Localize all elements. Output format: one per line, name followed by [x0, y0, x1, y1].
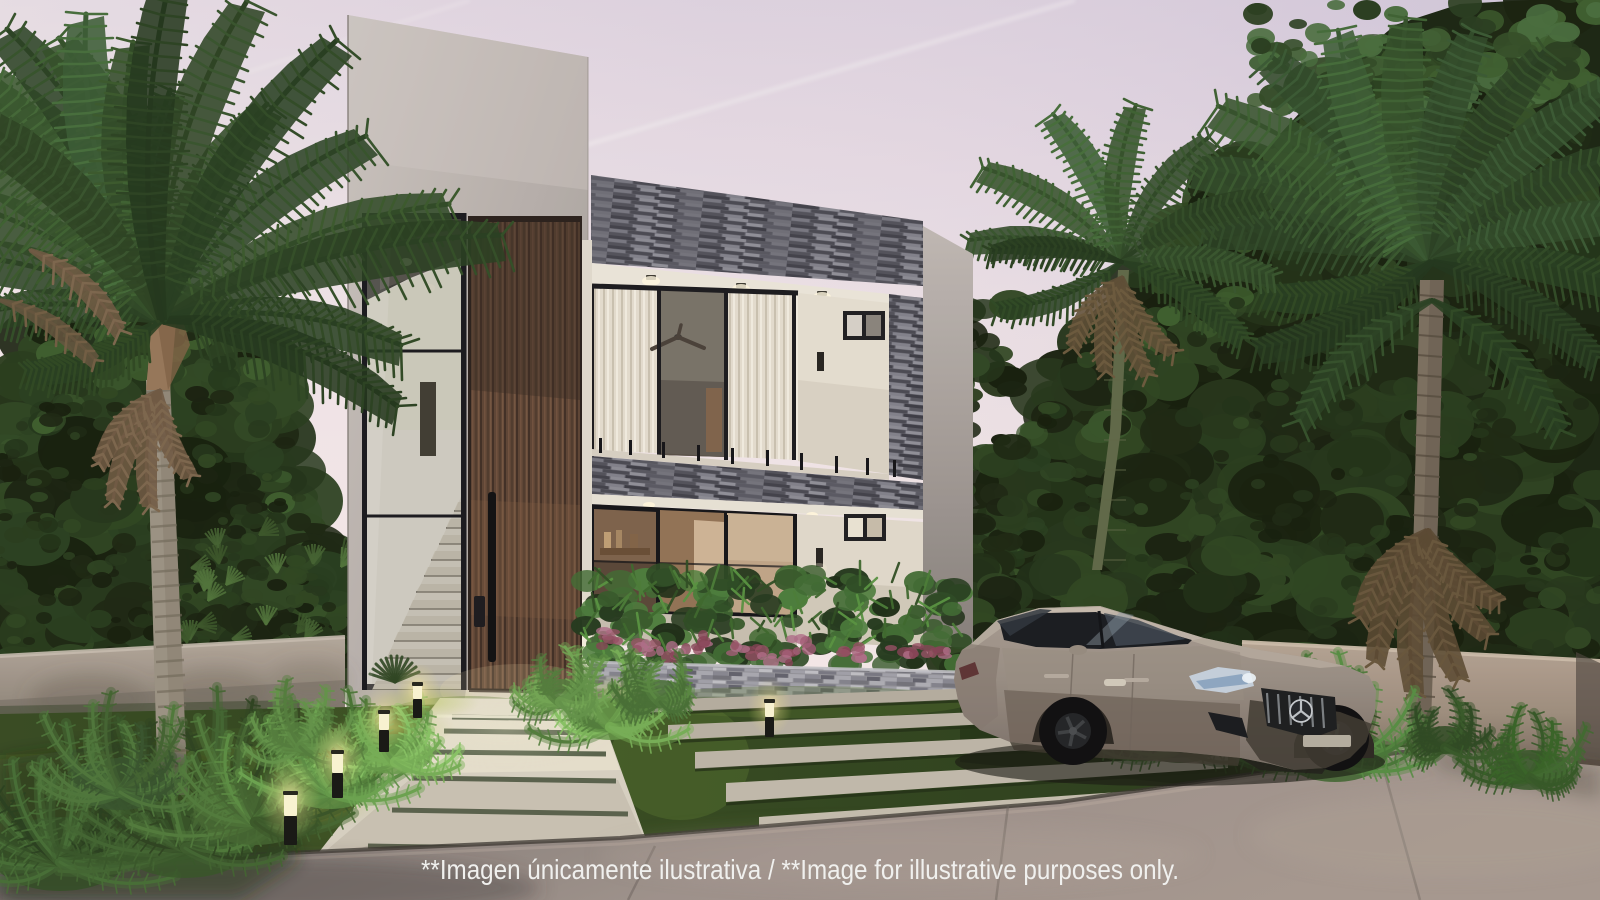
svg-text:**Imagen únicamente ilustrativ: **Imagen únicamente ilustrativa / **Imag…	[421, 854, 1179, 885]
